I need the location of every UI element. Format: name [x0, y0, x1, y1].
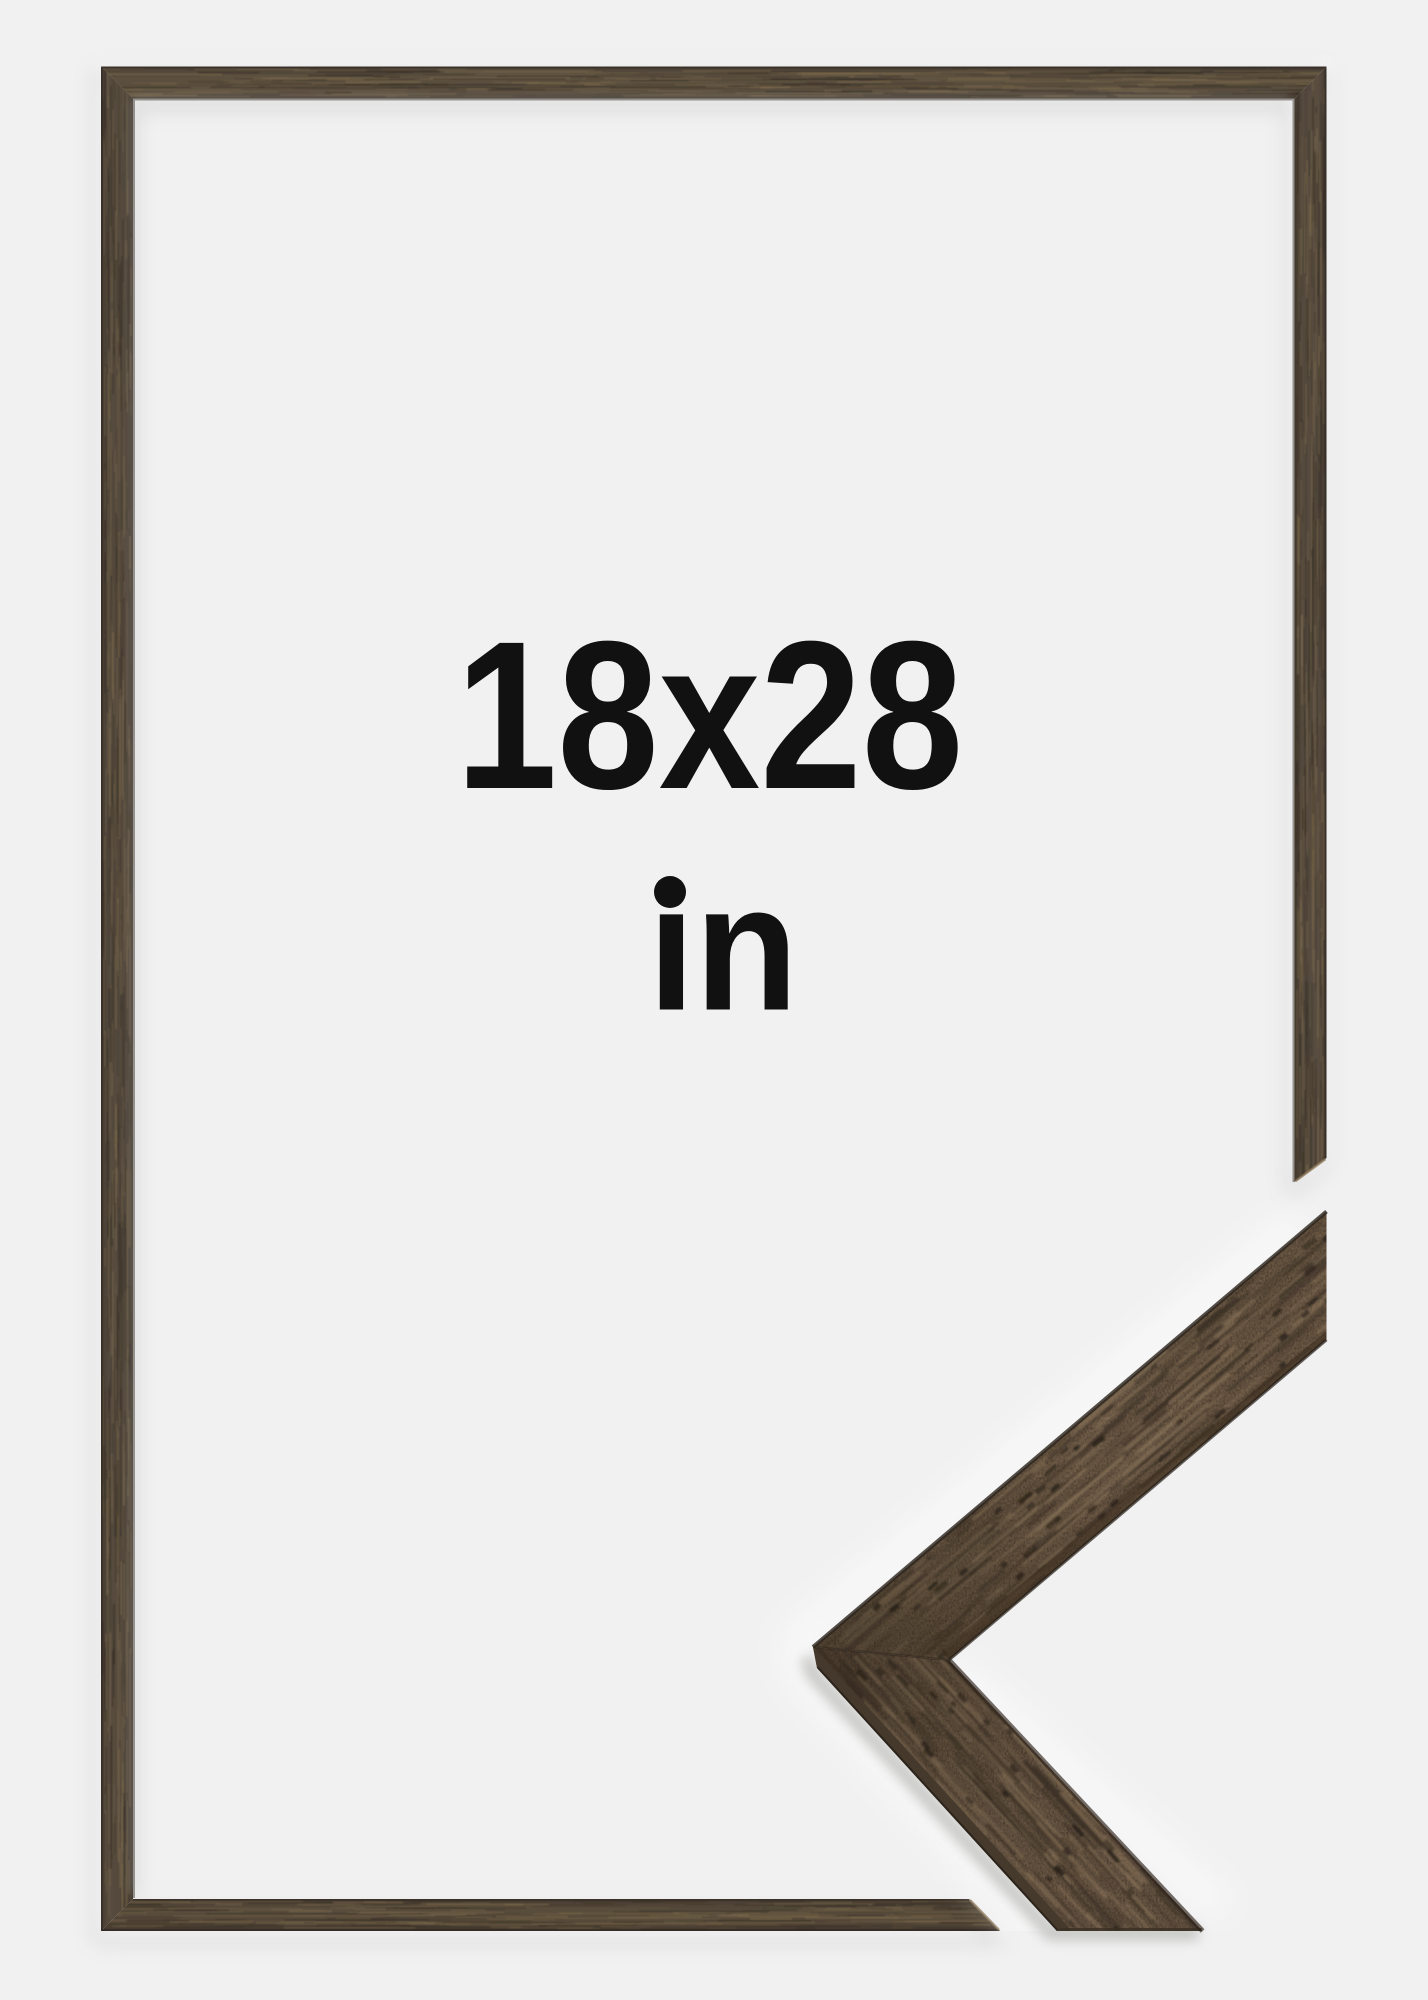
svg-text:18x28: 18x28 — [456, 597, 964, 833]
